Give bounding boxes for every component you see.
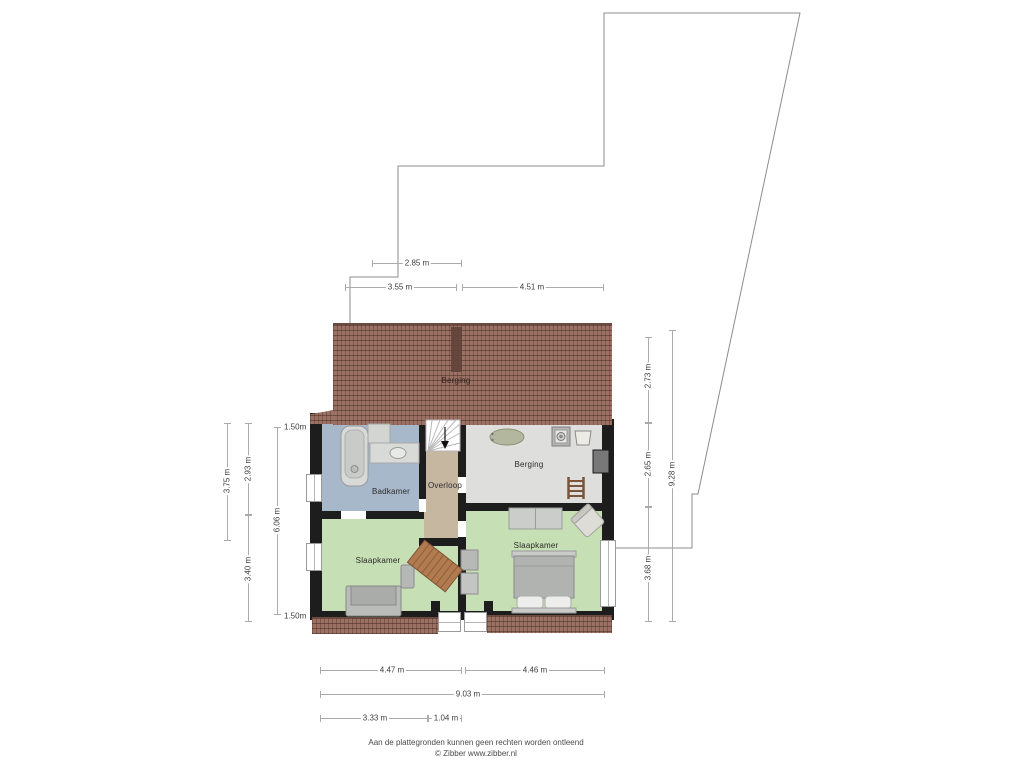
dim-label-104: 1.04 m bbox=[432, 714, 460, 723]
side-chair-icon bbox=[401, 565, 414, 588]
washbasin-icon bbox=[370, 443, 419, 463]
footer-credit: © Zibber www.zibber.nl bbox=[276, 749, 676, 758]
chair-icon bbox=[570, 503, 605, 538]
dim-label-368: 3.68 m bbox=[644, 554, 653, 582]
bathtub-icon bbox=[341, 426, 368, 486]
dim-label-273: 2.73 m bbox=[644, 362, 653, 390]
wardrobe-icon bbox=[509, 508, 562, 529]
room-label-slaapkamer-right: Slaapkamer bbox=[514, 541, 559, 550]
bed-icon bbox=[512, 551, 576, 613]
dim-label-375: 3.75 m bbox=[223, 467, 232, 495]
furniture-layer bbox=[0, 0, 1024, 768]
laundry-basket-icon bbox=[575, 431, 591, 445]
sofa-icon bbox=[346, 586, 401, 616]
dim-label-446: 4.46 m bbox=[521, 666, 549, 675]
chimney-icon bbox=[593, 450, 609, 473]
nightstand-icon bbox=[461, 573, 478, 594]
room-label-overloop: Overloop bbox=[428, 481, 462, 490]
dim-label-knee-top: 1.50m bbox=[282, 423, 308, 432]
room-label-slaapkamer-left: Slaapkamer bbox=[356, 556, 401, 565]
ladder-icon bbox=[568, 477, 584, 499]
dim-label-447: 4.47 m bbox=[378, 666, 406, 675]
desk-icon bbox=[407, 540, 462, 592]
dim-label-265: 2.65 m bbox=[644, 450, 653, 478]
room-label-berging: Berging bbox=[515, 460, 544, 469]
dim-label-928: 9.28 m bbox=[668, 460, 677, 488]
floorplan-page: Berging Badkamer Overloop Berging Slaapk… bbox=[0, 0, 1024, 768]
shower-icon bbox=[368, 424, 390, 443]
footer-disclaimer: Aan de plattegronden kunnen geen rechten… bbox=[276, 738, 676, 747]
dim-label-333: 3.33 m bbox=[361, 714, 389, 723]
dim-label-knee-bottom: 1.50m bbox=[282, 612, 308, 621]
dim-label-340: 3.40 m bbox=[244, 555, 253, 583]
oval-tub-icon bbox=[490, 429, 524, 445]
room-label-roof-berging: Berging bbox=[442, 376, 471, 385]
room-label-badkamer: Badkamer bbox=[372, 487, 410, 496]
dim-label-451: 4.51 m bbox=[518, 283, 546, 292]
nightstand-icon bbox=[461, 550, 478, 570]
dim-label-285: 2.85 m bbox=[403, 259, 431, 268]
stairs-icon bbox=[426, 420, 460, 451]
dim-label-293: 2.93 m bbox=[244, 455, 253, 483]
dim-label-903: 9.03 m bbox=[454, 690, 482, 699]
washing-machine-icon bbox=[552, 427, 570, 446]
dim-label-606: 6.06 m bbox=[273, 506, 282, 534]
dim-label-355: 3.55 m bbox=[386, 283, 414, 292]
